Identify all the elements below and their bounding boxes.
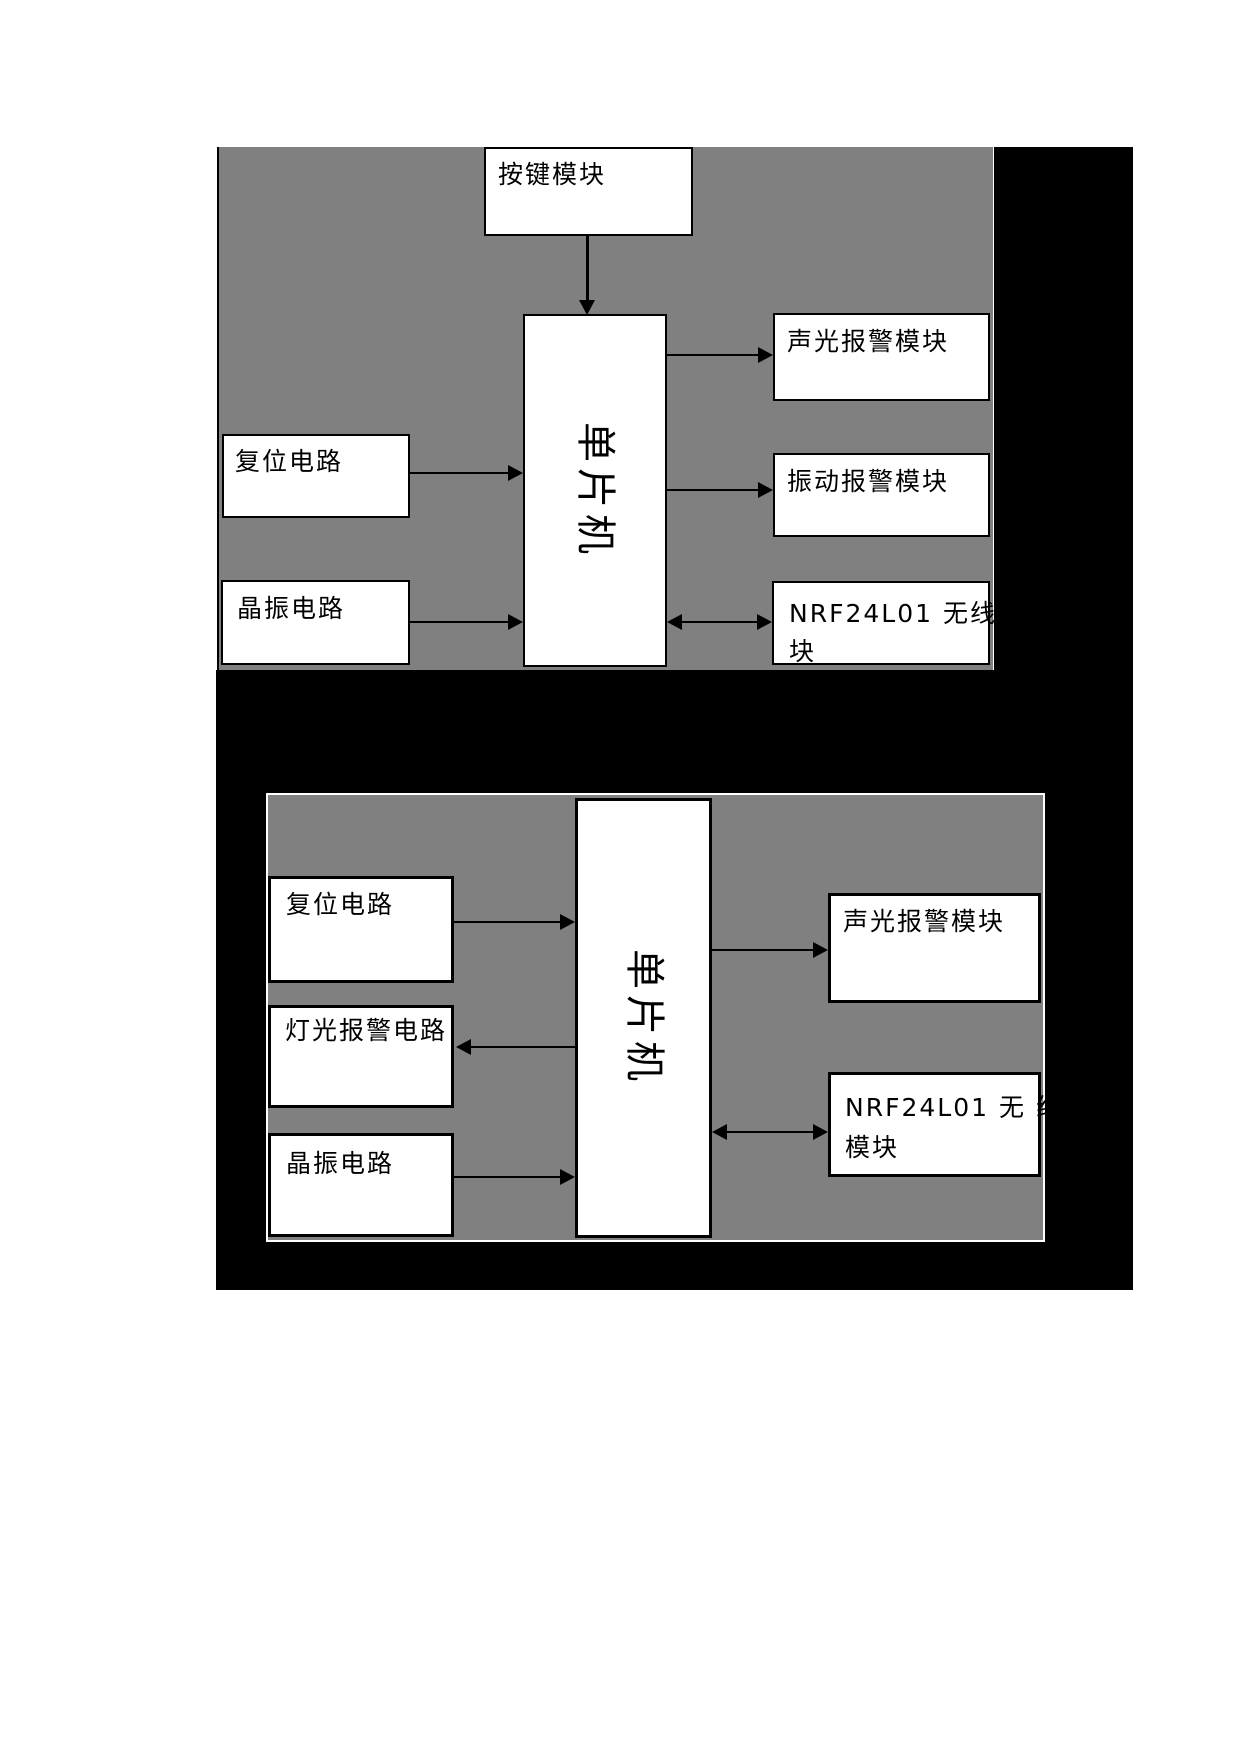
arrowhead-crystal-to-mcu-top — [508, 614, 523, 630]
line-mcu-to-sound-light-bottom — [712, 949, 813, 951]
line-mcu-nrf-top — [682, 621, 758, 623]
box-sound-light-alarm-bottom-label: 声光报警模块 — [843, 907, 1005, 936]
box-nrf-wireless-top-line2: 块 — [789, 633, 988, 671]
box-reset-circuit-top: 复位电路 — [222, 434, 410, 518]
box-nrf-wireless-bottom: NRF24L01 无 线 模块 — [828, 1072, 1041, 1177]
box-crystal-circuit-bottom: 晶振电路 — [268, 1133, 454, 1237]
box-light-alarm-circuit: 灯光报警电路 — [268, 1005, 454, 1108]
box-crystal-circuit-top-label: 晶振电路 — [237, 594, 345, 623]
top-diagram-black-strip — [994, 147, 1133, 670]
line-crystal-to-mcu-top — [410, 621, 509, 623]
arrowhead-nrf-to-mcu-top — [667, 614, 682, 630]
box-sound-light-alarm-bottom: 声光报警模块 — [828, 893, 1041, 1003]
box-nrf-wireless-top-line1: NRF24L01 无线模 — [789, 595, 988, 633]
line-mcu-to-sound-light-top — [667, 354, 759, 356]
line-mcu-nrf-bottom — [727, 1131, 814, 1133]
line-keypad-to-mcu — [586, 236, 589, 300]
line-crystal-to-mcu-bottom — [454, 1176, 561, 1178]
box-mcu-bottom: 单片机 — [575, 798, 712, 1238]
box-vibration-alarm-label: 振动报警模块 — [787, 467, 949, 496]
box-vibration-alarm: 振动报警模块 — [773, 453, 990, 537]
box-mcu-top-label: 单片机 — [578, 422, 612, 560]
arrowhead-reset-to-mcu-top — [508, 465, 523, 481]
line-reset-to-mcu-bottom — [454, 921, 561, 923]
line-mcu-to-light-alarm — [471, 1046, 575, 1048]
arrowhead-mcu-to-sound-light-bottom — [813, 942, 828, 958]
box-light-alarm-circuit-label: 灯光报警电路 — [285, 1016, 447, 1045]
box-reset-circuit-bottom: 复位电路 — [268, 876, 454, 983]
arrowhead-mcu-to-sound-light-top — [758, 347, 773, 363]
arrowhead-mcu-to-nrf-top — [757, 614, 772, 630]
box-nrf-wireless-bottom-line1: NRF24L01 无 线 — [845, 1088, 1038, 1128]
arrowhead-mcu-to-vibration — [758, 482, 773, 498]
arrowhead-nrf-to-mcu-bottom — [712, 1124, 727, 1140]
document-page: 按键模块 复位电路 晶振电路 单片机 声光报警模块 振动报警模块 NRF24L0… — [0, 0, 1240, 1754]
box-nrf-wireless-top: NRF24L01 无线模 块 — [772, 581, 990, 665]
line-reset-to-mcu-top — [410, 472, 509, 474]
box-key-module-label: 按键模块 — [498, 160, 606, 189]
box-key-module: 按键模块 — [484, 147, 693, 236]
box-sound-light-alarm-top-label: 声光报警模块 — [787, 327, 949, 356]
arrowhead-keypad-to-mcu — [579, 300, 595, 315]
box-sound-light-alarm-top: 声光报警模块 — [773, 313, 990, 401]
box-crystal-circuit-bottom-label: 晶振电路 — [286, 1149, 394, 1178]
arrowhead-mcu-to-light-alarm — [456, 1039, 471, 1055]
line-mcu-to-vibration — [667, 489, 759, 491]
arrowhead-crystal-to-mcu-bottom — [560, 1169, 575, 1185]
arrowhead-mcu-to-nrf-bottom — [813, 1124, 828, 1140]
box-nrf-wireless-bottom-line2: 模块 — [845, 1128, 1038, 1168]
box-mcu-top: 单片机 — [523, 314, 667, 667]
box-crystal-circuit-top: 晶振电路 — [221, 580, 410, 665]
box-reset-circuit-top-label: 复位电路 — [235, 447, 343, 476]
arrowhead-reset-to-mcu-bottom — [560, 914, 575, 930]
box-reset-circuit-bottom-label: 复位电路 — [286, 890, 394, 919]
box-mcu-bottom-label: 单片机 — [627, 949, 661, 1087]
